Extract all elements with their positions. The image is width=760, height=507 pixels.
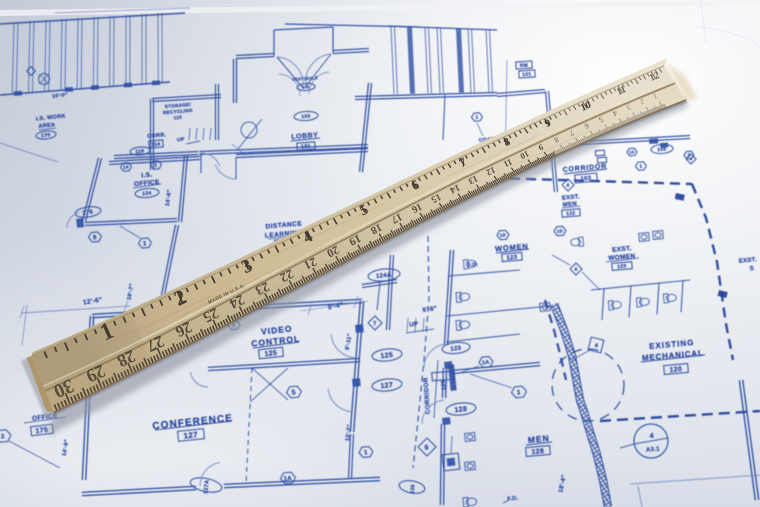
- svg-text:128: 128: [454, 406, 467, 414]
- svg-text:120: 120: [669, 366, 682, 374]
- svg-text:100: 100: [302, 84, 310, 90]
- svg-text:F.D.: F.D.: [468, 262, 479, 269]
- svg-text:F.D.: F.D.: [507, 496, 519, 503]
- svg-text:123: 123: [617, 263, 627, 270]
- svg-text:1A: 1A: [482, 360, 490, 367]
- svg-text:UP: UP: [409, 322, 419, 329]
- svg-text:122: 122: [566, 210, 576, 217]
- svg-text:4: 4: [649, 433, 654, 440]
- svg-text:1D: 1D: [556, 228, 563, 234]
- svg-text:6: 6: [424, 444, 429, 451]
- svg-text:103: 103: [301, 113, 311, 120]
- svg-text:5: 5: [291, 389, 296, 396]
- svg-text:1D: 1D: [499, 232, 506, 238]
- svg-text:1: 1: [639, 164, 643, 170]
- svg-text:14: 14: [123, 164, 129, 169]
- svg-text:114: 114: [151, 141, 160, 148]
- svg-text:1: 1: [475, 115, 479, 121]
- svg-text:1: 1: [517, 389, 522, 396]
- svg-text:UP: UP: [177, 137, 185, 144]
- svg-text:125: 125: [264, 350, 277, 358]
- svg-text:124: 124: [142, 190, 152, 197]
- svg-text:126: 126: [410, 484, 417, 494]
- svg-text:A3.1: A3.1: [646, 446, 661, 453]
- svg-text:125: 125: [380, 352, 393, 360]
- svg-text:101: 101: [522, 71, 532, 78]
- svg-text:127: 127: [380, 382, 393, 390]
- svg-text:I.S.: I.S.: [141, 172, 153, 180]
- svg-text:RM: RM: [520, 63, 529, 70]
- svg-text:128: 128: [531, 448, 544, 456]
- svg-text:105: 105: [657, 146, 667, 153]
- svg-text:S: S: [750, 266, 755, 272]
- svg-text:170: 170: [41, 132, 51, 139]
- svg-text:1: 1: [154, 163, 158, 169]
- svg-text:127: 127: [183, 430, 198, 440]
- svg-text:123: 123: [450, 346, 462, 353]
- svg-text:115: 115: [174, 115, 183, 121]
- svg-text:4: 4: [574, 267, 578, 273]
- svg-text:123: 123: [506, 255, 518, 262]
- svg-text:15: 15: [629, 149, 635, 154]
- svg-text:4: 4: [566, 183, 570, 189]
